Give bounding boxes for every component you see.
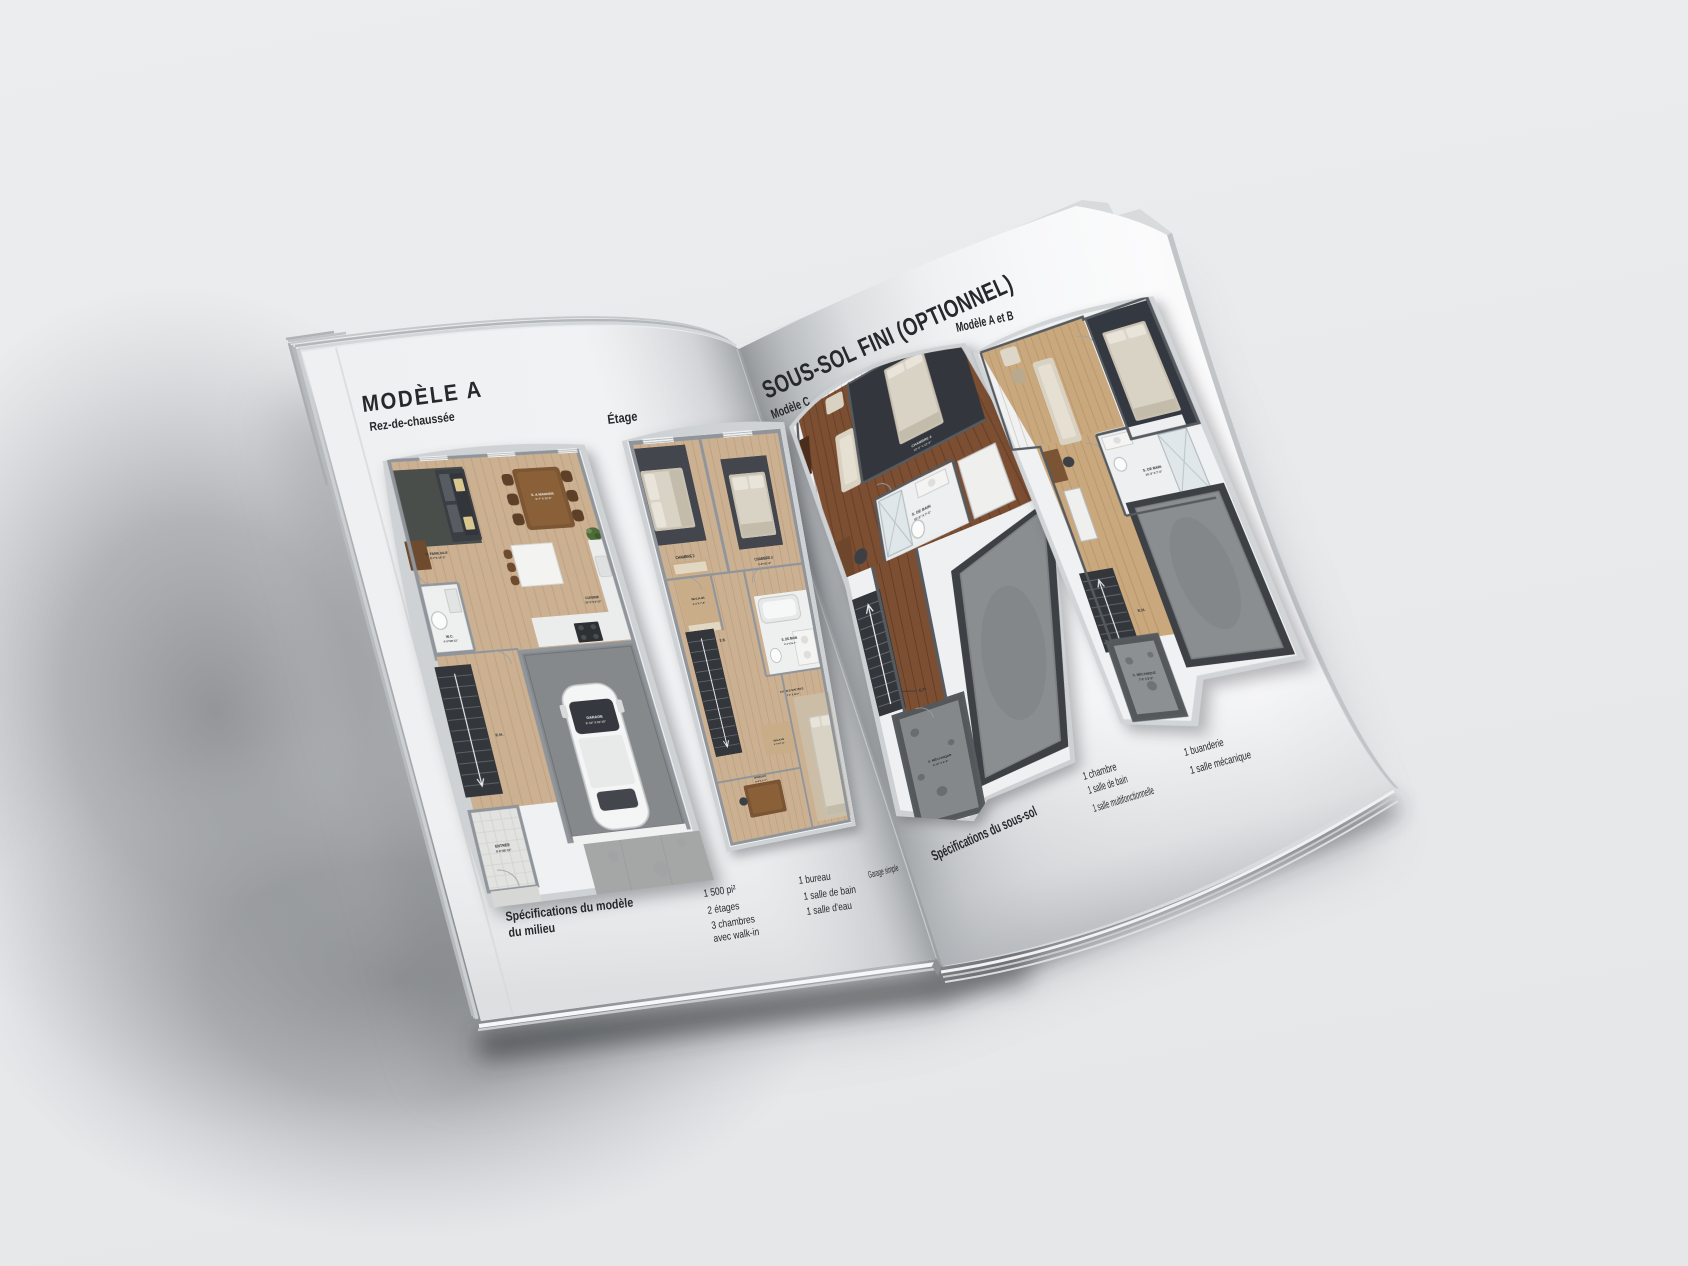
svg-text:E.H.: E.H. [495,732,504,737]
svg-text:W.C.: W.C. [445,634,454,639]
